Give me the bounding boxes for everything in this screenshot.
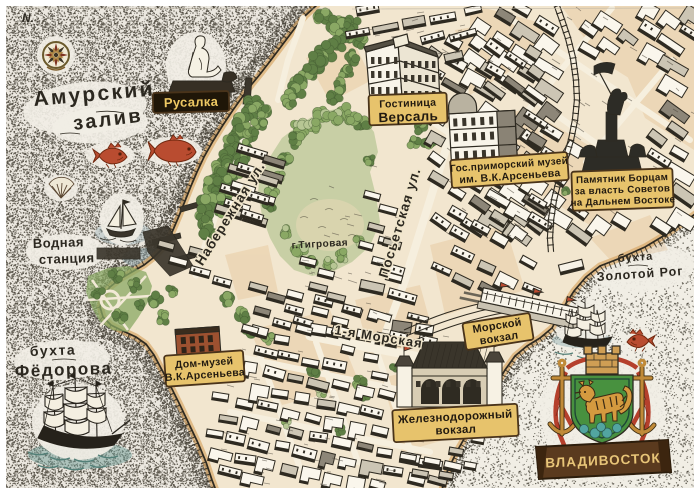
svg-text:Версаль: Версаль bbox=[378, 108, 438, 125]
svg-text:Водная: Водная bbox=[33, 234, 85, 251]
svg-text:вокзал: вокзал bbox=[435, 423, 476, 437]
svg-text:Фёдорова: Фёдорова bbox=[14, 359, 112, 381]
svg-text:бухта: бухта bbox=[30, 341, 77, 359]
svg-text:станция: станция bbox=[39, 250, 95, 267]
svg-text:Русалка: Русалка bbox=[164, 94, 219, 110]
svg-text:бухта: бухта bbox=[617, 251, 653, 265]
svg-text:N.: N. bbox=[22, 11, 34, 25]
